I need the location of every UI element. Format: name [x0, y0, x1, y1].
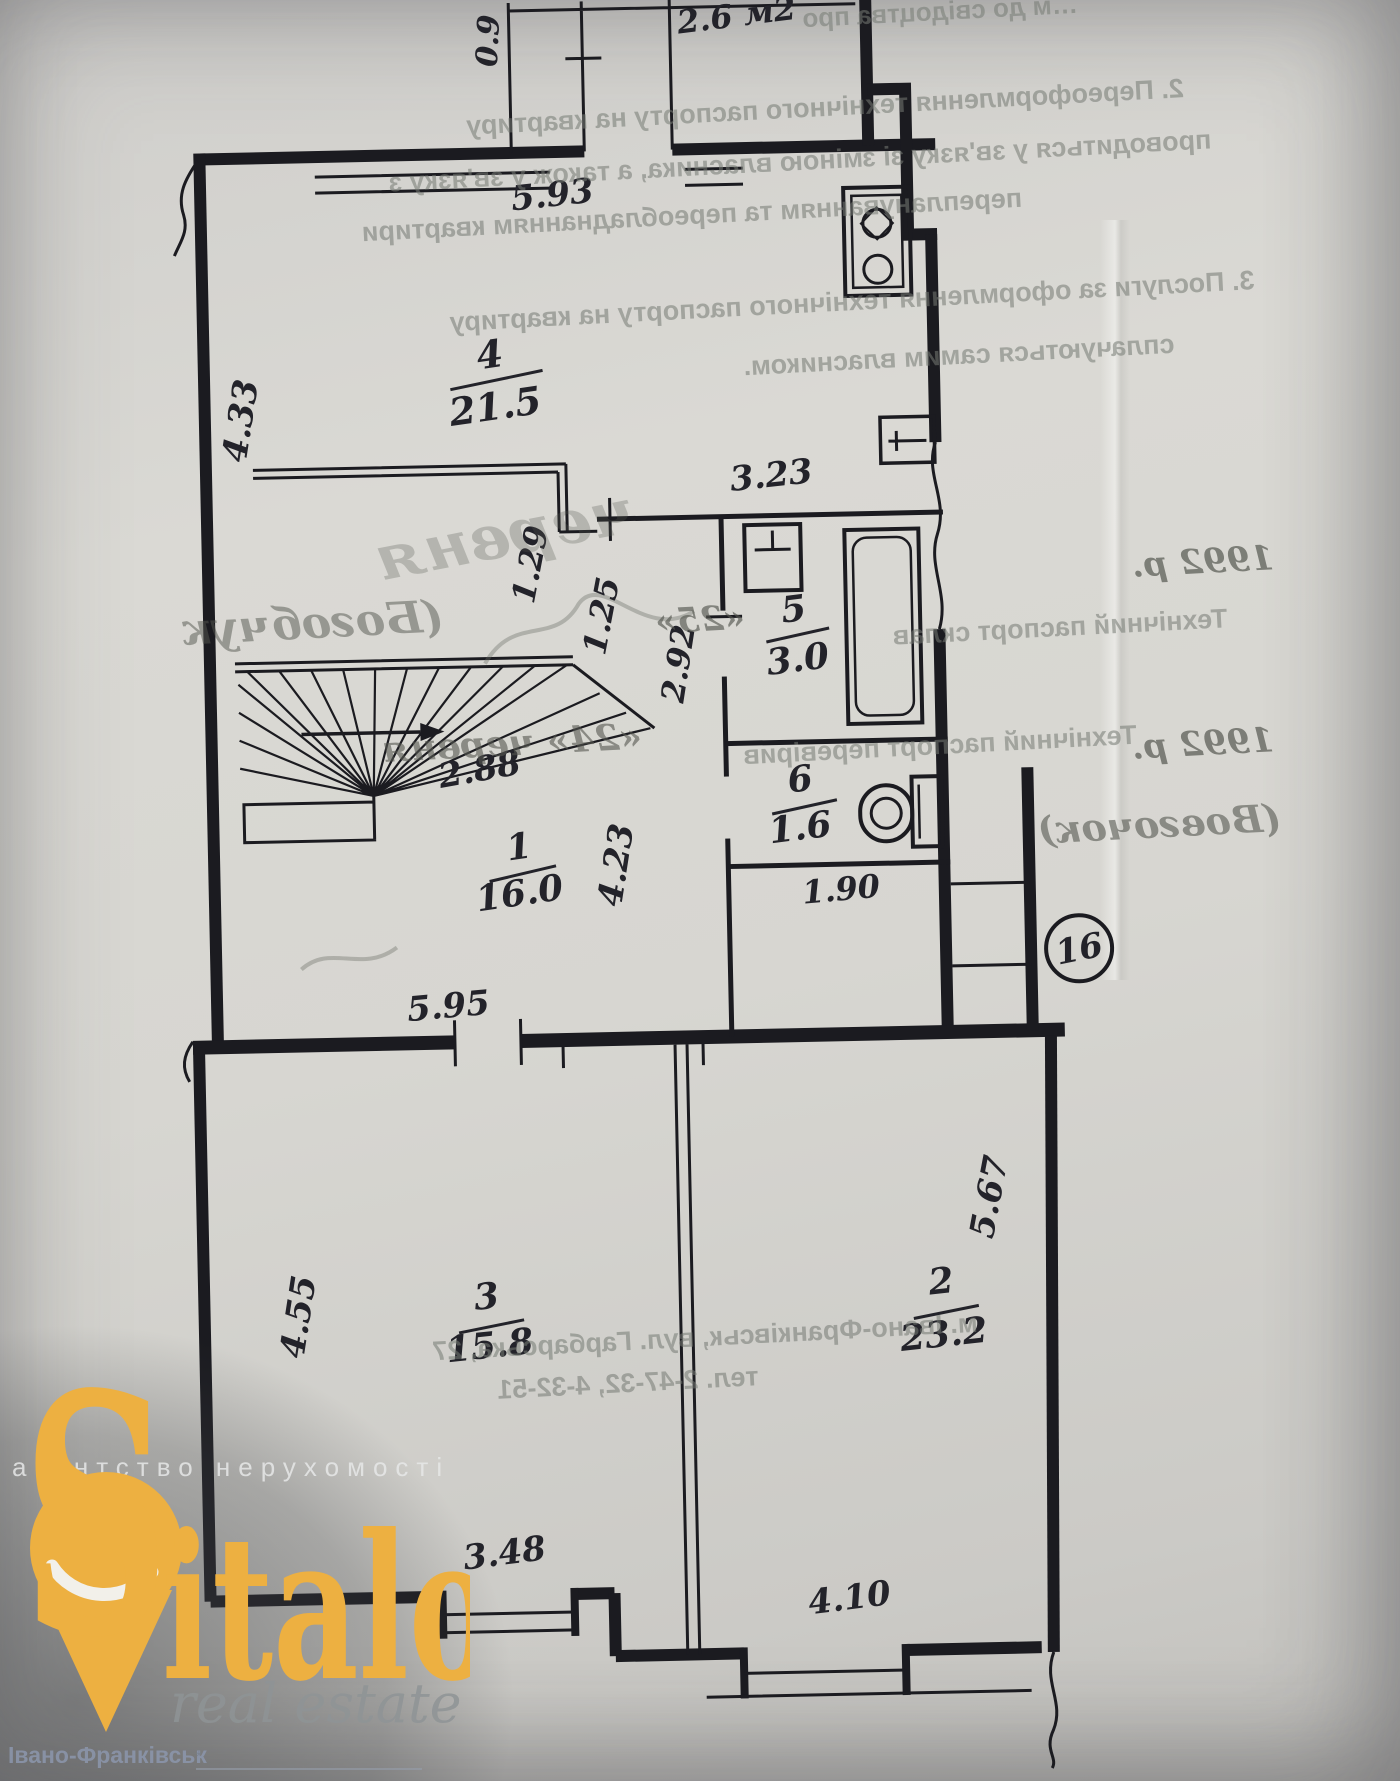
washbasin-icon: [744, 524, 801, 591]
dim-1-90: 1.90: [801, 867, 882, 912]
dim-1-25: 1.25: [575, 574, 627, 658]
bleed-checked-year: 1992 р.: [1127, 720, 1279, 768]
dim-5-95: 5.95: [405, 983, 491, 1030]
dim-4-23: 4.23: [590, 821, 642, 909]
watermark-underline: [196, 1768, 422, 1770]
dim-3-23: 3.23: [728, 451, 815, 500]
watermark-logo: S italo real estate: [0, 1280, 470, 1781]
watermark-star: *: [196, 1748, 202, 1765]
room-3-number: 3: [472, 1275, 501, 1319]
dim-3-48: 3.48: [461, 1528, 548, 1578]
room-2-number: 2: [925, 1259, 955, 1304]
dim-4-33: 4.33: [215, 377, 267, 465]
room-1-area: 16.0: [473, 866, 566, 920]
room-6-area: 1.6: [766, 803, 833, 853]
bleed-made-year: 1992 р.: [1127, 538, 1279, 586]
bleed-made-day: «25»: [639, 597, 761, 643]
watermark-city-label: Івано-Франківськ: [8, 1742, 207, 1769]
dim-5-67: 5.67: [962, 1152, 1017, 1241]
brand-subtitle: real estate: [170, 1672, 462, 1735]
brand-letter-s: S: [22, 1322, 170, 1710]
dim-4-10: 4.10: [806, 1573, 894, 1623]
room-1-number: 1: [504, 824, 535, 869]
dim-0-9: 0.9: [470, 14, 508, 68]
room-1-label: 1 16.0: [467, 821, 566, 921]
room-4-area: 21.5: [445, 377, 544, 435]
radiator-icon: [880, 416, 935, 463]
room-4-label: 4 21.5: [438, 325, 550, 435]
apartment-number-badge: 16: [1045, 915, 1112, 982]
toilet-icon: [859, 776, 942, 848]
apartment-number: 16: [1052, 925, 1106, 973]
scanned-floorplan-photo: 16 5.93 0.9 2.6 м2 4.33 3.23 1.29 1.25 2…: [0, 0, 1400, 1781]
room-4-number: 4: [473, 330, 506, 378]
